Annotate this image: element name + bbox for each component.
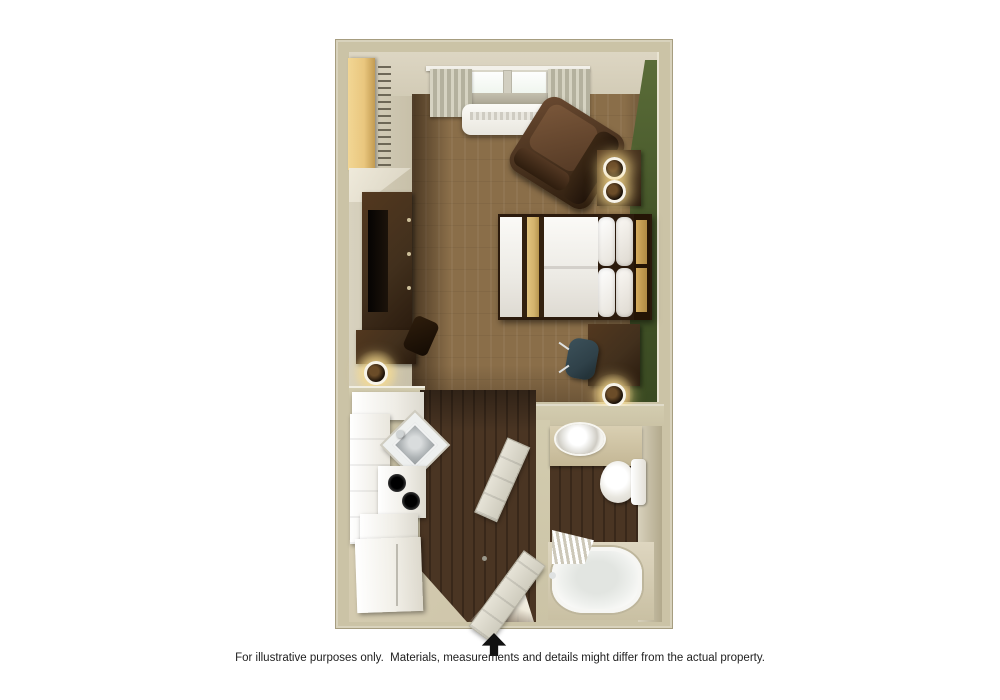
console-knob <box>407 286 411 290</box>
floor-lamp-left <box>364 361 388 385</box>
entry-door-knob <box>482 556 487 561</box>
bed-runner <box>527 217 539 317</box>
kitchen-faucet <box>396 430 404 438</box>
table-lamp-2 <box>603 180 626 203</box>
table-lamp-1 <box>603 157 626 180</box>
vanity-sink <box>556 424 604 454</box>
stove-burner <box>402 492 420 510</box>
pillow <box>616 217 633 266</box>
closet-wardrobe <box>348 58 375 170</box>
closet-hangers <box>378 64 391 166</box>
console-knob <box>407 252 411 256</box>
tub-faucet <box>549 572 556 579</box>
headboard-panel <box>636 220 647 264</box>
pillow <box>616 268 633 317</box>
floor-lamp-right <box>602 383 626 407</box>
refrigerator <box>355 537 424 613</box>
toilet-tank <box>631 459 646 505</box>
floorplan-screenshot: For illustrative purposes only. Material… <box>0 0 1000 700</box>
tv-screen <box>368 210 388 312</box>
console-knob <box>407 218 411 222</box>
wall-inner-edge-highlight <box>657 52 659 402</box>
stove <box>378 466 426 518</box>
stove-burner <box>388 474 406 492</box>
bed-duvet-crease <box>544 266 598 269</box>
caption-text: For illustrative purposes only. Material… <box>0 652 1000 664</box>
headboard-panel <box>636 268 647 312</box>
pillow <box>598 217 615 266</box>
bed-foot-sheet <box>500 217 522 317</box>
bathroom-top-wall <box>536 406 664 426</box>
pillow <box>598 268 615 317</box>
refrigerator-handle <box>396 544 398 606</box>
